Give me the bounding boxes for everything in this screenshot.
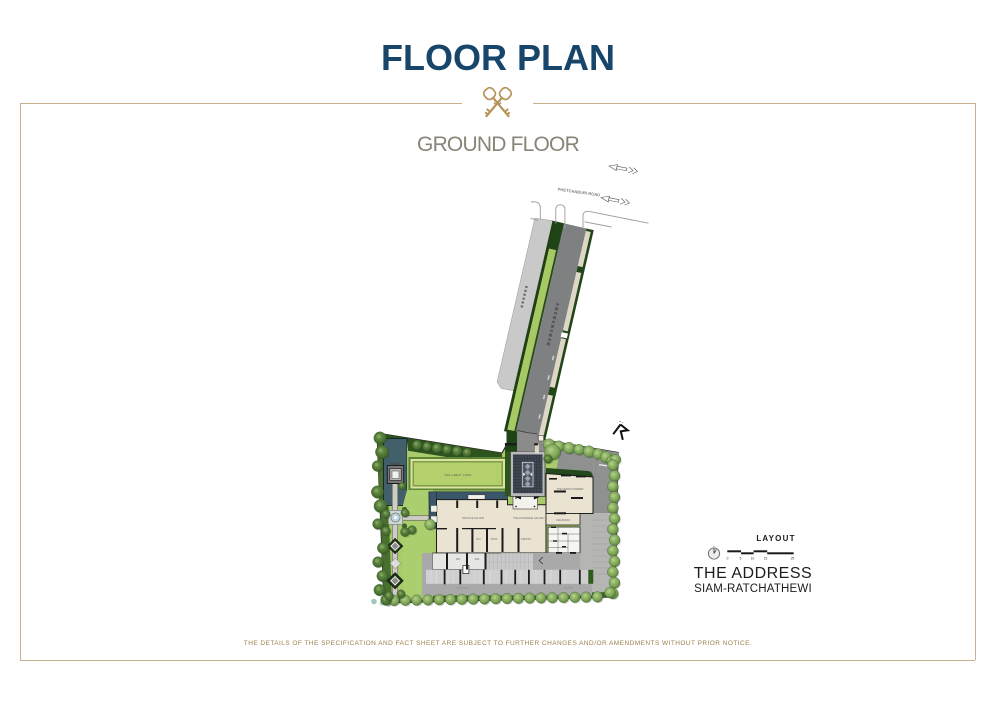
svg-text:PHETCHABURI ROAD: PHETCHABURI ROAD <box>557 187 600 198</box>
svg-text:0: 0 <box>727 557 729 561</box>
svg-text:JURISTIC: JURISTIC <box>521 538 532 541</box>
svg-text:FB2: FB2 <box>475 558 480 561</box>
svg-text:FB1: FB1 <box>456 558 461 561</box>
svg-text:5: 5 <box>740 557 742 561</box>
svg-text:MAILROOM: MAILROOM <box>556 519 569 522</box>
svg-text:25: 25 <box>791 557 795 561</box>
svg-text:THE CONCIERGE GALLERY: THE CONCIERGE GALLERY <box>513 517 545 520</box>
svg-text:15: 15 <box>764 557 768 561</box>
svg-text:10: 10 <box>751 557 755 561</box>
svg-text:SHOP: SHOP <box>491 538 498 541</box>
svg-text:THE BLUE SALOON: THE BLUE SALOON <box>462 517 485 520</box>
svg-text:THE GRAND CHAMBER: THE GRAND CHAMBER <box>557 488 584 491</box>
svg-text:W.C.: W.C. <box>476 538 482 541</box>
svg-text:THE GREAT LAWN: THE GREAT LAWN <box>445 473 472 477</box>
